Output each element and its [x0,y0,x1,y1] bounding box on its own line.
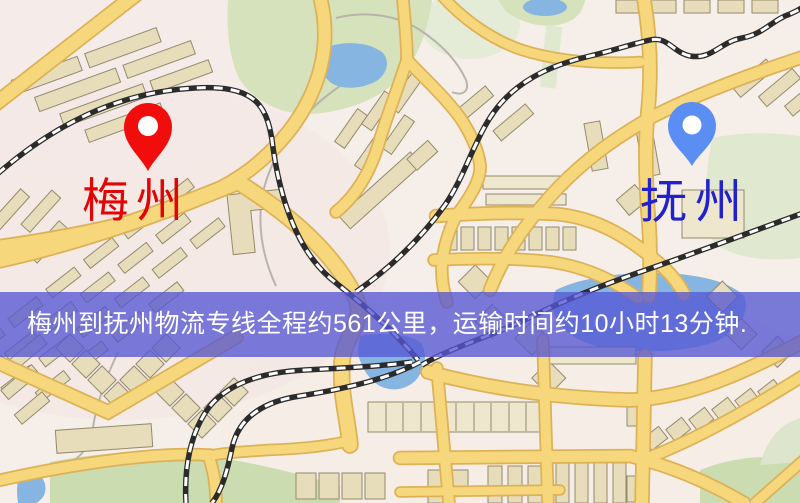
meizhou-city-label: 梅州 [82,178,190,225]
fuzhou-pin-icon[interactable] [668,102,716,166]
map-canvas[interactable] [0,0,800,503]
route-info-text: 梅州到抚州物流专线全程约561公里，运输时间约10小时13分钟. [0,292,800,357]
route-info-banner: 梅州到抚州物流专线全程约561公里，运输时间约10小时13分钟. [0,292,800,357]
map-screenshot: 梅州 抚州 梅州到抚州物流专线全程约561公里，运输时间约10小时13分钟. [0,0,800,503]
fuzhou-city-label: 抚州 [640,179,750,226]
